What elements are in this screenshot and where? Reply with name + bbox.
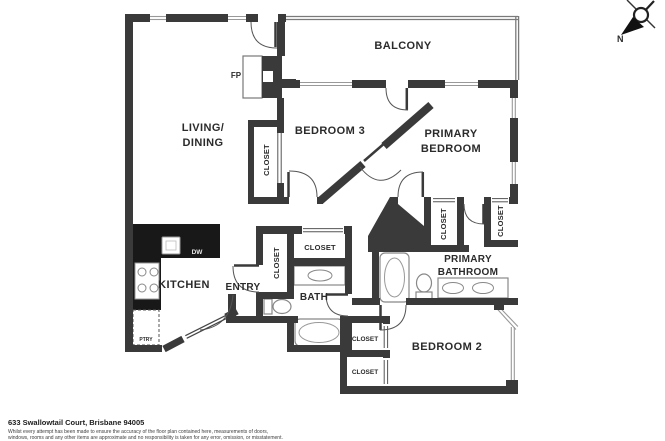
fireplace-hearth [243,56,262,98]
compass-north-label: N [617,34,624,44]
room-label-pbath-1: PRIMARY [444,254,492,265]
footer-address: 633 Swallowtail Court, Brisbane 94005 [8,418,144,427]
room-label-bath: BATH [300,292,328,303]
room-label-bedroom2: BEDROOM 2 [412,341,482,353]
primary-toilet-tank [416,292,432,299]
closet-label: CLOSET [439,208,448,240]
footer: 633 Swallowtail Court, Brisbane 94005 Wh… [8,418,283,441]
door-arc [464,204,484,224]
pantry-label: PTRY [139,337,153,343]
compass: N [617,0,655,44]
closet-label: CLOSET [262,144,271,176]
dishwasher-label: DW [192,249,204,256]
closet-label: CLOSET [304,243,336,252]
primary-toilet-bowl [417,274,432,292]
room-label-living-2: DINING [183,137,224,149]
room-label-balcony: BALCONY [374,40,431,52]
bath-sink [308,270,332,281]
bath-toilet-bowl [273,300,291,314]
footer-disclaimer-2: windows, rooms and any other items are a… [8,435,283,441]
room-label-pbath-2: BATHROOM [438,267,499,278]
room-label-primary-2: BEDROOM [421,143,481,155]
door-arc [360,167,401,180]
entry-door-leaf [185,316,226,339]
room-label-primary-1: PRIMARY [424,128,477,140]
room-label-entry: ENTRY [225,282,260,293]
bath-toilet-tank [264,299,272,314]
closet-label: CLOSET [352,336,378,343]
door-arc [398,172,423,197]
closet-label: CLOSET [272,247,281,279]
fireplace-label: FP [231,71,242,80]
kitchen-sink [162,237,180,254]
door-arc [251,22,277,48]
room-label-kitchen: KITCHEN [158,279,210,291]
floor-plan-page: BALCONY LIVING/ DINING BEDROOM 3 PRIMARY… [0,0,665,441]
room-label-bedroom3: BEDROOM 3 [295,125,365,137]
door-arc [386,88,408,110]
fireplace-firebox [263,71,273,82]
door-arc [326,294,348,316]
primary-sink-left [443,283,464,294]
primary-sink-right [473,283,494,294]
door-arc [289,171,317,197]
room-label-living-1: LIVING/ [182,122,225,134]
closet-label: CLOSET [496,205,505,237]
floor-plan: BALCONY LIVING/ DINING BEDROOM 3 PRIMARY… [0,0,665,441]
angled-wall [368,197,424,252]
closet-label: CLOSET [352,369,378,376]
